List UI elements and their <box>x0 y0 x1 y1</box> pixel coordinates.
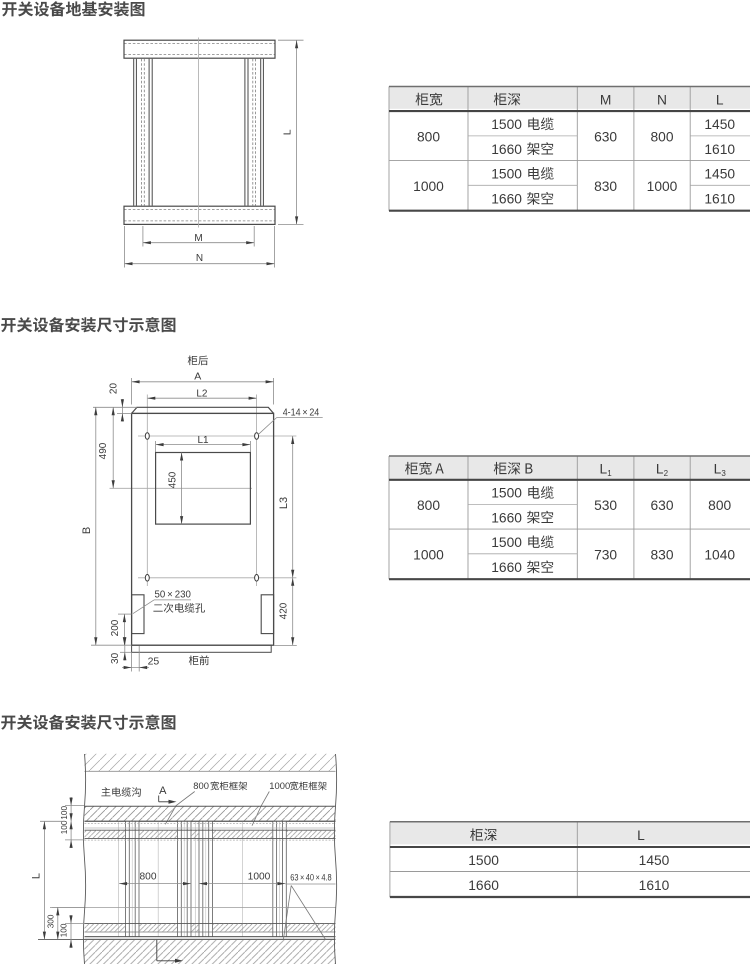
svg-text:450: 450 <box>167 471 178 488</box>
svg-text:300: 300 <box>47 914 56 928</box>
svg-text:630: 630 <box>594 129 617 144</box>
svg-text:1000: 1000 <box>269 780 290 791</box>
svg-text:1660: 1660 <box>491 560 522 575</box>
svg-text:800: 800 <box>140 871 157 882</box>
svg-text:20: 20 <box>109 383 120 395</box>
svg-text:L3: L3 <box>278 497 290 509</box>
svg-text:63 × 40 × 4.8: 63 × 40 × 4.8 <box>290 873 332 884</box>
svg-text:200: 200 <box>110 619 121 636</box>
svg-text:100: 100 <box>60 923 69 937</box>
svg-text:50 × 230: 50 × 230 <box>155 590 192 601</box>
svg-text:1660: 1660 <box>491 510 522 525</box>
svg-text:830: 830 <box>650 547 673 562</box>
svg-text:1000: 1000 <box>413 547 444 562</box>
svg-text:100: 100 <box>60 820 69 834</box>
svg-text:L2: L2 <box>196 389 208 400</box>
svg-text:M: M <box>194 233 202 244</box>
svg-text:1660: 1660 <box>491 142 522 157</box>
svg-text:800: 800 <box>417 129 440 144</box>
svg-text:1000: 1000 <box>413 179 444 194</box>
svg-text:1040: 1040 <box>704 547 735 562</box>
svg-text:1500: 1500 <box>468 853 499 868</box>
svg-text:L: L <box>716 92 724 107</box>
svg-text:1660: 1660 <box>491 192 522 207</box>
svg-text:490: 490 <box>98 442 109 459</box>
svg-text:M: M <box>600 92 612 107</box>
svg-text:1450: 1450 <box>704 167 735 182</box>
svg-text:1000: 1000 <box>647 179 678 194</box>
svg-text:B: B <box>81 527 93 534</box>
svg-text:A: A <box>159 785 167 797</box>
svg-text:800: 800 <box>650 129 673 144</box>
svg-text:800: 800 <box>708 498 731 513</box>
svg-text:L: L <box>30 873 42 879</box>
svg-text:800: 800 <box>417 498 440 513</box>
svg-text:1450: 1450 <box>639 853 670 868</box>
svg-text:1000: 1000 <box>248 871 271 882</box>
svg-text:800: 800 <box>193 780 209 791</box>
svg-text:4-14 × 24: 4-14 × 24 <box>283 407 320 418</box>
svg-text:1450: 1450 <box>704 117 735 132</box>
svg-text:630: 630 <box>650 498 673 513</box>
svg-text:1500: 1500 <box>491 117 522 132</box>
svg-text:1500: 1500 <box>491 167 522 182</box>
svg-text:30: 30 <box>110 652 121 664</box>
svg-text:1660: 1660 <box>468 878 499 893</box>
svg-text:L: L <box>637 828 645 843</box>
svg-text:530: 530 <box>594 498 617 513</box>
svg-text:1500: 1500 <box>491 535 522 550</box>
svg-text:100: 100 <box>60 806 69 820</box>
svg-text:25: 25 <box>148 655 160 667</box>
svg-text:A: A <box>194 371 201 383</box>
svg-text:L1: L1 <box>197 435 209 446</box>
svg-text:1610: 1610 <box>639 878 670 893</box>
svg-text:1610: 1610 <box>704 192 735 207</box>
svg-text:1610: 1610 <box>704 142 735 157</box>
svg-text:1500: 1500 <box>491 486 522 501</box>
svg-text:L: L <box>282 129 294 135</box>
svg-text:420: 420 <box>279 602 290 619</box>
svg-text:730: 730 <box>594 547 617 562</box>
svg-text:N: N <box>196 253 203 264</box>
svg-text:N: N <box>657 92 667 107</box>
svg-text:830: 830 <box>594 179 617 194</box>
